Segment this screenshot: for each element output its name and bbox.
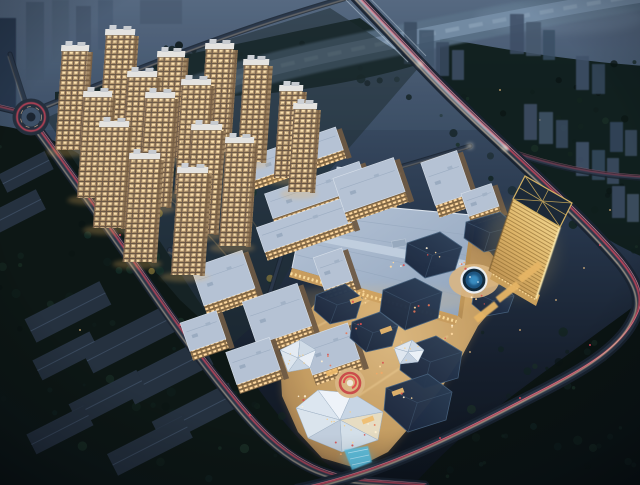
scene-canvas	[0, 0, 640, 485]
aerial-render: Dusk aerial architectural rendering of a…	[0, 0, 640, 485]
vignette	[0, 0, 640, 485]
